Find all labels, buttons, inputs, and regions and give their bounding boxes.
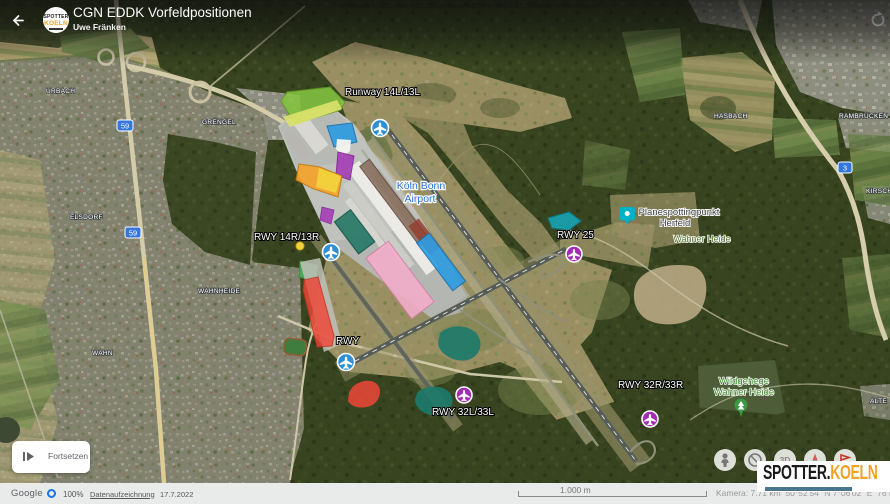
svg-text:RWY 32R/33R: RWY 32R/33R (618, 380, 683, 391)
svg-text:ELSDORF: ELSDORF (70, 214, 103, 221)
svg-text:WAHNHEIDE: WAHNHEIDE (198, 288, 241, 295)
svg-text:3: 3 (843, 164, 847, 173)
svg-text:Runway 14L/13L: Runway 14L/13L (345, 87, 420, 98)
svg-text:RWY 32L/33L: RWY 32L/33L (432, 407, 494, 418)
svg-text:KIRSCH: KIRSCH (866, 188, 890, 195)
svg-text:URBACH: URBACH (46, 88, 75, 95)
svg-text:WAHN: WAHN (92, 350, 113, 357)
svg-text:RWY 14R/13R: RWY 14R/13R (254, 232, 319, 243)
svg-text:Herfeld: Herfeld (660, 218, 691, 229)
svg-text:Wahner Heide: Wahner Heide (673, 234, 730, 244)
svg-text:RWY 25: RWY 25 (557, 230, 594, 241)
svg-text:Wildgehege: Wildgehege (719, 376, 769, 387)
svg-text:Planespottingpunkt: Planespottingpunkt (639, 207, 720, 218)
svg-text:HASBACH: HASBACH (714, 113, 748, 120)
svg-text:Wahner Heide: Wahner Heide (714, 387, 774, 398)
svg-text:RWY: RWY (336, 336, 359, 347)
svg-text:Airport: Airport (405, 193, 436, 205)
svg-text:RAMBRÜCKEN: RAMBRÜCKEN (839, 112, 888, 120)
svg-text:59: 59 (121, 122, 129, 131)
svg-text:Köln Bonn: Köln Bonn (397, 180, 446, 192)
svg-text:59: 59 (129, 229, 137, 238)
svg-text:GRENGEL: GRENGEL (202, 119, 236, 126)
svg-text:ALTE: ALTE (870, 398, 887, 405)
